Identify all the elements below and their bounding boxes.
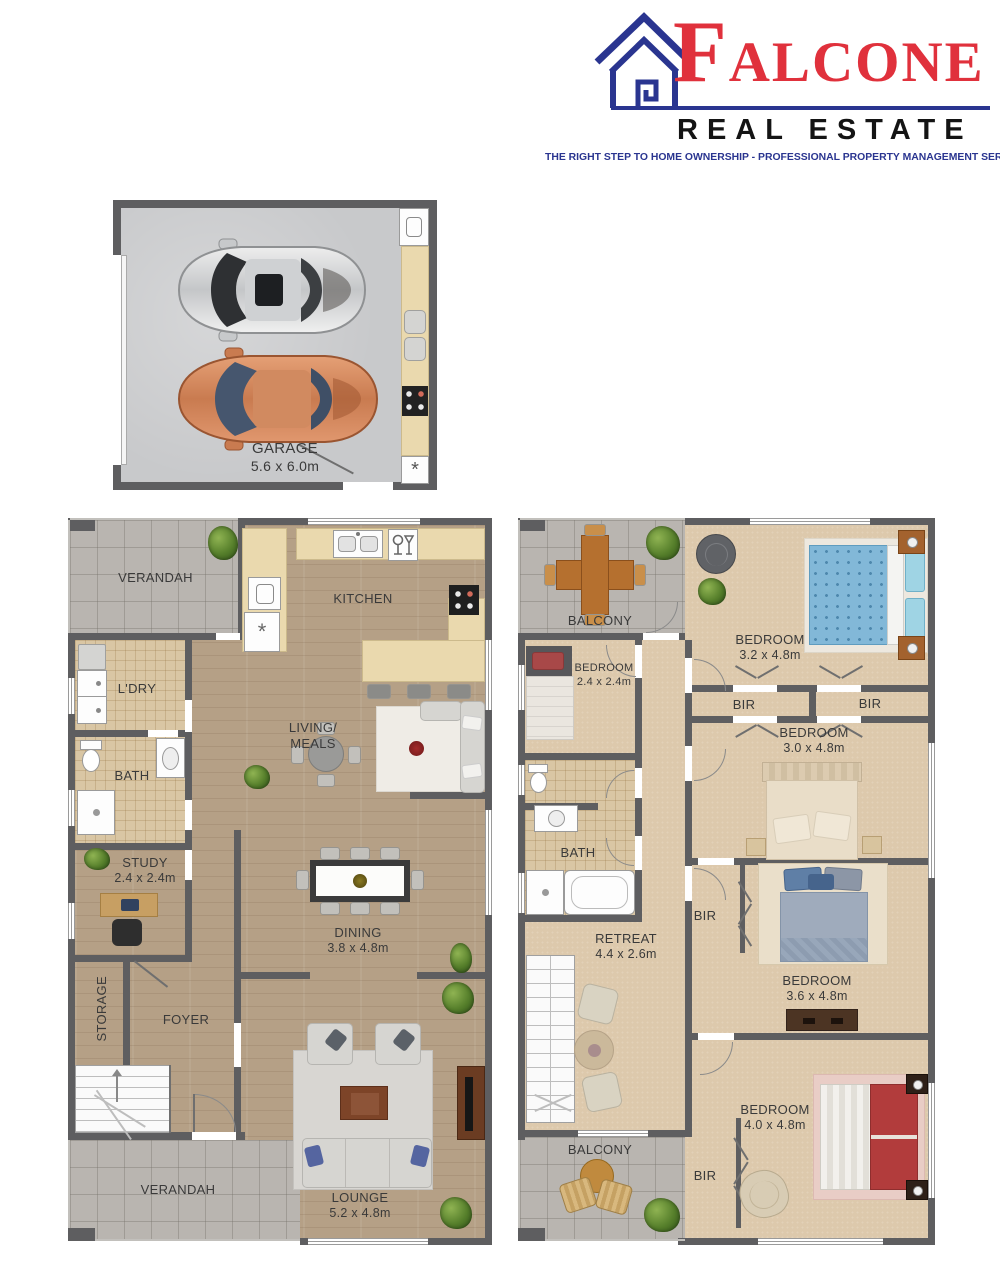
robe-door-opening bbox=[733, 685, 777, 692]
glass-rack-icon bbox=[388, 529, 418, 561]
dining-chair bbox=[350, 902, 370, 915]
verandah-edge bbox=[68, 1140, 70, 1240]
stool bbox=[367, 684, 391, 699]
staircase bbox=[526, 955, 575, 1123]
bed-cover bbox=[870, 1084, 918, 1190]
window bbox=[518, 765, 525, 795]
room-label-kitchen: KITCHEN bbox=[313, 591, 413, 607]
verandah-edge bbox=[68, 520, 70, 633]
bedroom-30-title: BEDROOM bbox=[764, 725, 864, 741]
laundry-tub-icon bbox=[404, 337, 426, 361]
shower-icon bbox=[77, 790, 115, 835]
balcony-edge bbox=[520, 518, 685, 520]
stool bbox=[407, 684, 431, 699]
wall bbox=[234, 830, 241, 1140]
wall bbox=[123, 962, 130, 1065]
floorplan-page: FALCONE REAL ESTATE THE RIGHT STEP TO HO… bbox=[0, 0, 1000, 1275]
front-door-opening bbox=[192, 1132, 236, 1140]
room-label-dining: DINING 3.8 x 4.8m bbox=[308, 925, 408, 956]
pillow bbox=[532, 652, 564, 670]
wall bbox=[234, 972, 310, 979]
garage-dims: 5.6 x 6.0m bbox=[225, 458, 345, 475]
window bbox=[518, 665, 525, 710]
lounge-dims: 5.2 x 4.8m bbox=[310, 1206, 410, 1221]
room-label-bir-mid: BIR bbox=[665, 908, 745, 924]
dining-chair bbox=[380, 902, 400, 915]
room-label-bedroom-small: BEDROOM bbox=[564, 662, 644, 675]
bedroom-40-title: BEDROOM bbox=[725, 1102, 825, 1118]
window bbox=[518, 873, 525, 913]
room-label-bedroom-30: BEDROOM 3.0 x 4.8m bbox=[764, 725, 864, 756]
bedroom-32-title: BEDROOM bbox=[720, 632, 820, 648]
wall bbox=[518, 915, 635, 922]
window bbox=[68, 678, 75, 714]
window bbox=[750, 518, 870, 525]
toilet-bowl bbox=[530, 772, 547, 793]
study-title: STUDY bbox=[95, 855, 195, 871]
outdoor-stool bbox=[584, 524, 606, 536]
hot-water-icon: * bbox=[401, 456, 429, 484]
bedside-table bbox=[906, 1180, 928, 1200]
room-label-bath: BATH bbox=[92, 768, 172, 784]
cooktop-icon bbox=[402, 386, 428, 416]
balcony-edge bbox=[518, 520, 520, 633]
wall bbox=[692, 716, 928, 723]
robe-door-opening bbox=[817, 685, 861, 692]
laundry-tub-icon bbox=[77, 670, 107, 724]
dining-chair bbox=[320, 847, 340, 860]
plant bbox=[208, 526, 238, 560]
bedroom-small-dims: 2.4 x 2.4m bbox=[564, 676, 644, 689]
lounge-chair bbox=[581, 1071, 624, 1114]
staircase bbox=[75, 1065, 171, 1133]
window bbox=[68, 790, 75, 826]
door-opening bbox=[635, 836, 642, 870]
cushion bbox=[461, 763, 483, 780]
round-rug bbox=[574, 1030, 614, 1070]
wall bbox=[692, 685, 928, 692]
pillow bbox=[772, 814, 811, 845]
door-opening bbox=[685, 658, 692, 693]
vanity-icon bbox=[534, 805, 578, 832]
robe-door-opening bbox=[817, 716, 861, 723]
garage-plan: * bbox=[113, 200, 437, 490]
door-opening bbox=[185, 800, 192, 830]
window bbox=[928, 743, 935, 878]
room-label-balcony-top: BALCONY bbox=[540, 613, 660, 629]
brand-tagline: THE RIGHT STEP TO HOME OWNERSHIP - PROFE… bbox=[545, 152, 995, 163]
bedside-table bbox=[906, 1074, 928, 1094]
room-label-foyer: FOYER bbox=[136, 1012, 236, 1028]
fridge-icon: * bbox=[244, 612, 280, 652]
armchair bbox=[696, 534, 736, 574]
plant bbox=[442, 982, 474, 1014]
verandah-edge bbox=[70, 1239, 300, 1241]
room-label-bir-right: BIR bbox=[830, 696, 910, 712]
bedside-table bbox=[898, 636, 925, 660]
bedroom-30-dims: 3.0 x 4.8m bbox=[764, 741, 864, 756]
cooktop-icon bbox=[449, 585, 479, 615]
stool bbox=[447, 684, 471, 699]
room-label-bedroom-36: BEDROOM 3.6 x 4.8m bbox=[767, 973, 867, 1004]
plant bbox=[644, 1198, 680, 1232]
window bbox=[68, 903, 75, 939]
door-opening bbox=[685, 866, 692, 901]
door-opening bbox=[216, 633, 240, 640]
window bbox=[485, 810, 492, 915]
shower-icon bbox=[526, 870, 564, 915]
dining-chair bbox=[380, 847, 400, 860]
retreat-dims: 4.4 x 2.6m bbox=[576, 947, 676, 962]
bedroom-36-title: BEDROOM bbox=[767, 973, 867, 989]
room-label-bedroom-40: BEDROOM 4.0 x 4.8m bbox=[725, 1102, 825, 1133]
bedside-table bbox=[862, 836, 882, 854]
car-orange bbox=[165, 346, 385, 452]
sliding-door bbox=[578, 1130, 648, 1137]
balcony-edge bbox=[518, 1140, 520, 1239]
dining-table bbox=[310, 860, 410, 902]
bed bbox=[809, 545, 889, 645]
brand-division: REAL ESTATE bbox=[677, 114, 973, 147]
robe-door-opening bbox=[733, 716, 777, 723]
wall bbox=[68, 843, 185, 850]
room-label-verandah-bottom: VERANDAH bbox=[118, 1182, 238, 1198]
plant bbox=[440, 1197, 472, 1229]
laundry-bench bbox=[78, 644, 106, 670]
laundry-tub-icon bbox=[404, 310, 426, 334]
room-label-lounge: LOUNGE 5.2 x 4.8m bbox=[310, 1190, 410, 1221]
door-opening bbox=[185, 700, 192, 732]
plant bbox=[450, 943, 472, 973]
logo-underline bbox=[611, 106, 990, 110]
verandah-edge bbox=[70, 518, 238, 520]
oven-icon bbox=[399, 208, 429, 246]
dining-chair bbox=[320, 902, 340, 915]
window bbox=[485, 640, 492, 710]
bathtub-icon bbox=[564, 870, 635, 915]
plant bbox=[646, 526, 680, 560]
outdoor-table bbox=[581, 535, 609, 615]
wall bbox=[68, 1228, 95, 1241]
dining-dims: 3.8 x 4.8m bbox=[308, 941, 408, 956]
balustrade bbox=[169, 1065, 171, 1133]
outdoor-stool bbox=[634, 564, 646, 586]
door-opening bbox=[685, 746, 692, 781]
room-label-garage: GARAGE 5.6 x 6.0m bbox=[225, 440, 345, 475]
pillow bbox=[905, 550, 925, 592]
pillow bbox=[905, 598, 925, 640]
study-dims: 2.4 x 2.4m bbox=[95, 871, 195, 886]
wall bbox=[410, 792, 485, 799]
wall bbox=[518, 1228, 545, 1241]
plant bbox=[698, 578, 726, 605]
living-line1: LIVING/ bbox=[263, 720, 363, 736]
bedroom-32-dims: 3.2 x 4.8m bbox=[720, 648, 820, 663]
drawer-unit bbox=[786, 1009, 858, 1031]
desk bbox=[100, 893, 158, 917]
lounge-title: LOUNGE bbox=[310, 1190, 410, 1206]
door-opening bbox=[698, 858, 734, 865]
wall bbox=[518, 753, 635, 760]
door-leaf bbox=[193, 1094, 195, 1132]
window bbox=[758, 1238, 883, 1245]
room-label-retreat: RETREAT 4.4 x 2.6m bbox=[576, 931, 676, 962]
room-label-bedroom-32: BEDROOM 3.2 x 4.8m bbox=[720, 632, 820, 663]
pillow bbox=[808, 874, 834, 890]
dining-title: DINING bbox=[308, 925, 408, 941]
bed bbox=[820, 1084, 872, 1190]
bed-sheet-fold bbox=[887, 545, 904, 645]
bedroom-36-dims: 3.6 x 4.8m bbox=[767, 989, 867, 1004]
oven-icon bbox=[248, 577, 281, 610]
chair bbox=[317, 774, 335, 787]
door-opening bbox=[148, 730, 178, 737]
car-silver bbox=[163, 238, 371, 342]
office-chair bbox=[112, 919, 142, 946]
wall bbox=[417, 972, 485, 979]
sofa bbox=[420, 701, 462, 721]
window bbox=[308, 518, 420, 525]
window bbox=[308, 1238, 428, 1245]
garage-door-opening bbox=[113, 255, 121, 465]
door-opening bbox=[643, 633, 679, 640]
dining-chair bbox=[411, 870, 424, 890]
ground-floor-plan: * bbox=[68, 518, 492, 1245]
kitchen-sink-icon bbox=[333, 530, 383, 558]
coffee-table bbox=[340, 1086, 388, 1120]
kitchen-island bbox=[362, 640, 485, 682]
door-opening bbox=[234, 1023, 241, 1067]
room-label-bir-bottom: BIR bbox=[665, 1168, 745, 1184]
garage-door-panel bbox=[121, 255, 127, 465]
door-opening bbox=[698, 1033, 734, 1040]
cushion bbox=[461, 715, 483, 732]
plant bbox=[244, 765, 270, 789]
room-label-balcony-bottom: BALCONY bbox=[540, 1142, 660, 1158]
wall bbox=[68, 955, 192, 962]
room-label-verandah-top: VERANDAH bbox=[98, 570, 213, 586]
brand-rest: ALCONE bbox=[729, 40, 985, 86]
brand-name: FALCONE bbox=[673, 18, 985, 88]
retreat-title: RETREAT bbox=[576, 931, 676, 947]
bedside-table bbox=[898, 530, 925, 554]
outdoor-stool bbox=[544, 564, 556, 586]
room-label-bir-left: BIR bbox=[704, 697, 784, 713]
dining-chair bbox=[296, 870, 309, 890]
door-opening bbox=[343, 482, 393, 490]
tv-cabinet bbox=[457, 1066, 485, 1140]
bed-headboard bbox=[762, 762, 862, 782]
bedside-table bbox=[746, 838, 766, 856]
room-label-bath: BATH bbox=[538, 845, 618, 861]
room-label-storage: STORAGE bbox=[94, 969, 110, 1049]
bedroom-40-dims: 4.0 x 4.8m bbox=[725, 1118, 825, 1133]
dining-chair bbox=[350, 847, 370, 860]
room-label-living-meals: LIVING/ MEALS bbox=[263, 720, 363, 751]
door-opening bbox=[635, 768, 642, 798]
bed bbox=[780, 892, 868, 962]
logo: FALCONE REAL ESTATE THE RIGHT STEP TO HO… bbox=[545, 8, 995, 170]
upper-floor-plan: BALCONY BEDROOM 2.4 x 2.4m BEDROOM 3.2 x… bbox=[518, 518, 935, 1245]
brand-first-letter: F bbox=[673, 18, 729, 88]
garage-title: GARAGE bbox=[225, 440, 345, 458]
room-label-study: STUDY 2.4 x 2.4m bbox=[95, 855, 195, 886]
room-label-laundry: L'DRY bbox=[97, 681, 177, 697]
living-line2: MEALS bbox=[263, 736, 363, 752]
window bbox=[928, 1083, 935, 1198]
pillow bbox=[812, 811, 851, 842]
